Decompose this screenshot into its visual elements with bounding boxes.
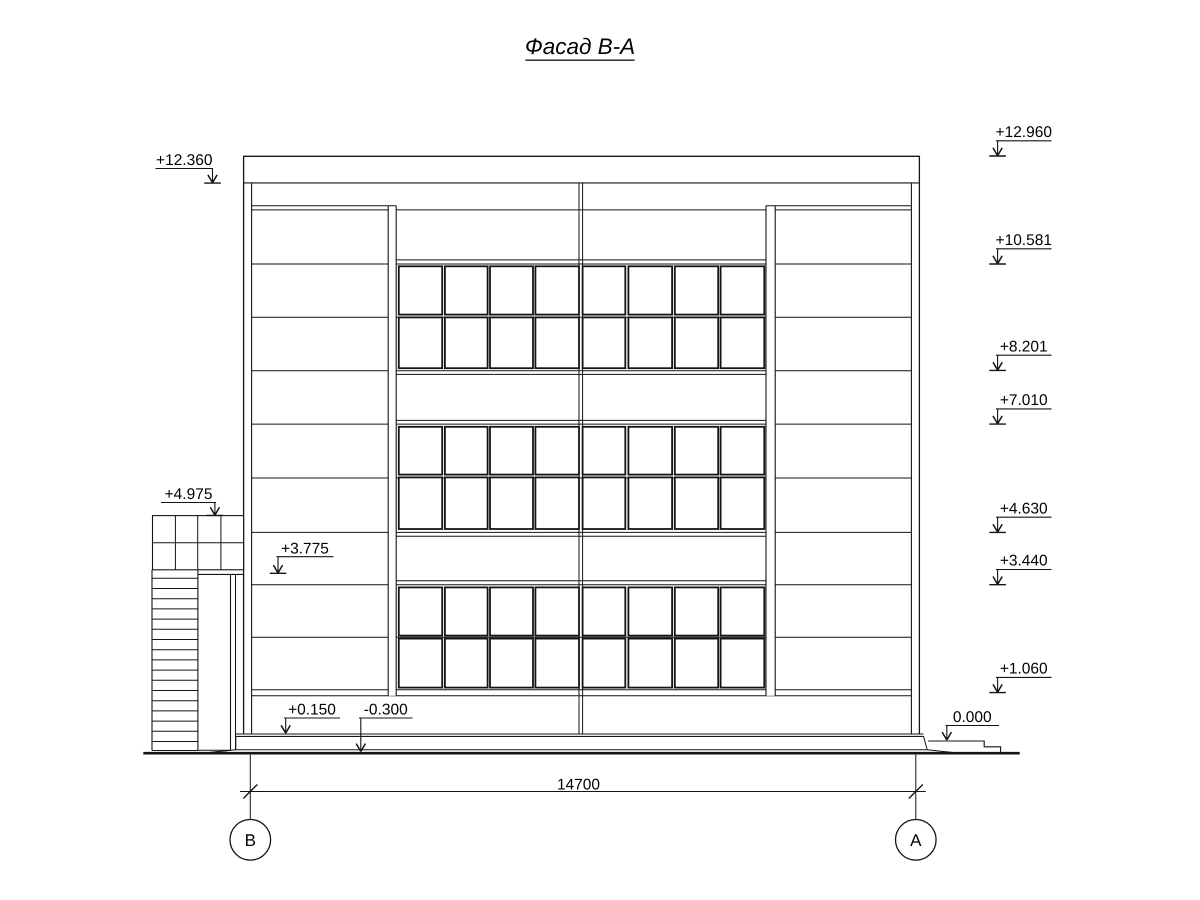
svg-text:-0.300: -0.300 (364, 702, 408, 719)
svg-text:+3.775: +3.775 (281, 540, 329, 557)
svg-text:+7.010: +7.010 (1000, 392, 1048, 409)
svg-text:В: В (245, 831, 256, 850)
svg-text:+4.975: +4.975 (165, 486, 213, 503)
svg-text:14700: 14700 (557, 776, 600, 793)
svg-text:+1.060: +1.060 (1000, 661, 1048, 678)
svg-text:+0.150: +0.150 (288, 702, 336, 719)
svg-text:+3.440: +3.440 (1000, 553, 1048, 570)
svg-text:0.000: 0.000 (953, 709, 992, 726)
svg-text:+10.581: +10.581 (996, 232, 1052, 249)
svg-text:+4.630: +4.630 (1000, 500, 1048, 517)
svg-text:+8.201: +8.201 (1000, 338, 1048, 355)
svg-text:+12.360: +12.360 (156, 152, 213, 169)
svg-text:+12.960: +12.960 (996, 124, 1053, 141)
svg-text:А: А (910, 831, 922, 850)
svg-text:Фасад В-А: Фасад В-А (525, 34, 635, 59)
